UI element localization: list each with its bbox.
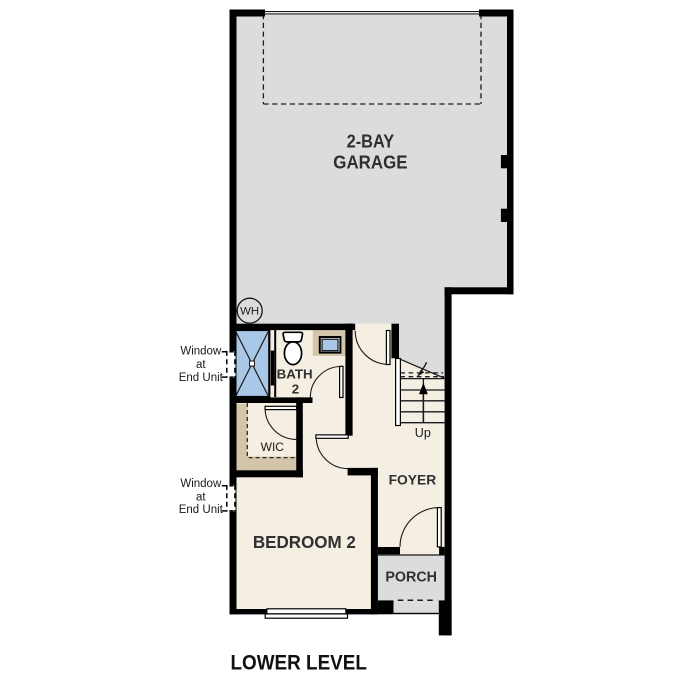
svg-text:at: at [196,359,206,371]
svg-text:Up: Up [415,426,431,440]
svg-text:End Unit: End Unit [179,372,224,384]
svg-text:BEDROOM 2: BEDROOM 2 [253,532,356,552]
svg-text:WIC: WIC [261,440,285,454]
svg-text:LOWER LEVEL: LOWER LEVEL [231,651,367,675]
svg-text:GARAGE: GARAGE [333,153,407,173]
svg-text:Window: Window [180,345,222,357]
svg-text:2-BAY: 2-BAY [347,132,395,152]
svg-text:2: 2 [292,381,299,396]
svg-text:End Unit: End Unit [179,504,224,516]
svg-text:Window: Window [180,478,222,490]
svg-text:FOYER: FOYER [389,472,437,487]
svg-text:BATH: BATH [277,366,313,381]
svg-text:at: at [196,492,206,504]
svg-text:WH: WH [240,305,259,317]
svg-text:PORCH: PORCH [385,570,437,586]
